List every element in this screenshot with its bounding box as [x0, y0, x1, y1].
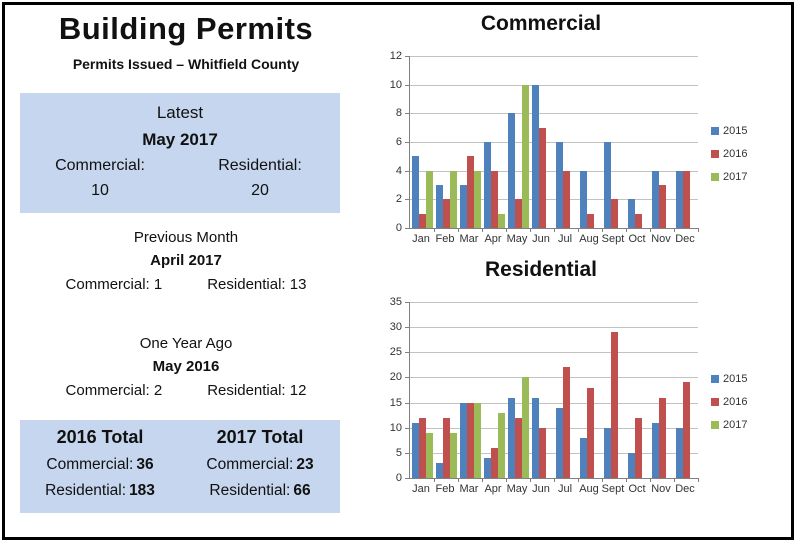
bar-group — [530, 56, 554, 228]
bar-2016-Mar — [467, 403, 474, 478]
bar-2016-Apr — [491, 448, 498, 478]
totals-2017-heading: 2017 Total — [180, 427, 340, 448]
bar-2016-Jun — [539, 428, 546, 478]
x-tick-mark — [554, 478, 555, 482]
residential-chart-body: 05101520253035 201520162017 — [385, 302, 791, 479]
bar-group — [554, 302, 578, 478]
bar-group — [410, 302, 434, 478]
totals-2017-commercial: Commercial:23 — [180, 456, 340, 474]
bar-group — [458, 302, 482, 478]
x-tick-mark — [602, 478, 603, 482]
totals-2016-commercial-label: Commercial: — [46, 456, 133, 473]
previous-month-block: Previous Month April 2017 Commercial: 1 … — [5, 229, 367, 293]
bar-group — [482, 302, 506, 478]
page-subtitle: Permits Issued – Whitfield County — [5, 56, 367, 72]
y-tick-label: 25 — [390, 346, 402, 359]
bar-2015-Sept — [604, 428, 611, 478]
totals-2017-residential-label: Residential: — [209, 482, 290, 499]
bar-2015-Aug — [580, 438, 587, 478]
x-tick-label: Sept — [601, 229, 625, 245]
totals-2017-commercial-label: Commercial: — [206, 456, 293, 473]
x-tick-label: Feb — [433, 229, 457, 245]
latest-labels-row: Commercial: Residential: — [20, 157, 340, 175]
x-tick-mark — [578, 228, 579, 232]
x-axis: JanFebMarAprMayJunJulAugSeptOctNovDec — [409, 229, 697, 245]
y-axis: 024681012 — [385, 56, 409, 228]
x-tick-label: Aug — [577, 479, 601, 495]
bar-2015-Apr — [484, 142, 491, 228]
bar-2016-Mar — [467, 156, 474, 228]
x-tick-mark — [482, 228, 483, 232]
bar-2015-Mar — [460, 403, 467, 478]
bar-2016-Oct — [635, 418, 642, 478]
x-tick-label: Feb — [433, 479, 457, 495]
x-tick-label: Dec — [673, 479, 697, 495]
x-tick-label: May — [505, 479, 529, 495]
legend-label-2016: 2016 — [723, 148, 747, 160]
legend-swatch-2017 — [711, 173, 719, 181]
y-tick-label: 20 — [390, 371, 402, 384]
bar-2016-Oct — [635, 214, 642, 228]
x-tick-label: Jan — [409, 229, 433, 245]
totals-2017-column: 2017 Total Commercial:23 Residential:66 — [180, 427, 340, 513]
bar-2015-May — [508, 398, 515, 478]
plot-area — [409, 302, 698, 479]
bar-2016-Aug — [587, 214, 594, 228]
residential-chart: Residential 05101520253035 201520162017 … — [385, 256, 791, 495]
latest-month: May 2017 — [20, 130, 340, 150]
totals-2016-heading: 2016 Total — [20, 427, 180, 448]
y-tick-label: 2 — [396, 193, 402, 206]
y-tick-label: 12 — [390, 50, 402, 63]
bar-2017-Mar — [474, 403, 481, 478]
legend-label-2017: 2017 — [723, 419, 747, 431]
x-tick-mark — [458, 228, 459, 232]
bar-2015-Jun — [532, 398, 539, 478]
y-tick-label: 0 — [396, 222, 402, 235]
bar-2017-Mar — [474, 171, 481, 228]
totals-2016-residential: Residential:183 — [20, 482, 180, 500]
x-tick-label: Sept — [601, 479, 625, 495]
legend-label-2016: 2016 — [723, 396, 747, 408]
bar-2015-Nov — [652, 423, 659, 478]
x-tick-mark — [650, 478, 651, 482]
commercial-chart-body: 024681012 201520162017 — [385, 56, 791, 229]
x-tick-label: Mar — [457, 479, 481, 495]
legend-swatch-2015 — [711, 375, 719, 383]
x-tick-label: Jul — [553, 229, 577, 245]
x-tick-label: Apr — [481, 229, 505, 245]
commercial-chart: Commercial 024681012 201520162017 JanFeb… — [385, 10, 791, 245]
x-tick-label: May — [505, 229, 529, 245]
bar-group — [674, 56, 698, 228]
y-tick-label: 30 — [390, 321, 402, 334]
x-tick-mark — [506, 478, 507, 482]
one-year-ago-name: May 2016 — [5, 358, 367, 375]
x-tick-mark — [530, 478, 531, 482]
y-tick-label: 15 — [390, 397, 402, 410]
previous-residential: Residential: 13 — [207, 276, 306, 293]
oneyear-commercial: Commercial: 2 — [66, 382, 163, 399]
bar-2017-Jan — [426, 433, 433, 478]
bar-group — [434, 56, 458, 228]
x-tick-label: Jun — [529, 229, 553, 245]
bar-2017-Feb — [450, 171, 457, 228]
bar-group — [458, 56, 482, 228]
x-tick-mark — [554, 228, 555, 232]
residential-chart-title: Residential — [385, 256, 697, 284]
y-tick-label: 5 — [396, 447, 402, 460]
one-year-ago-block: One Year Ago May 2016 Commercial: 2 Resi… — [5, 335, 367, 399]
bar-2016-Nov — [659, 185, 666, 228]
x-tick-mark — [506, 228, 507, 232]
x-tick-mark — [602, 228, 603, 232]
bar-2016-May — [515, 418, 522, 478]
bar-2016-Apr — [491, 171, 498, 228]
bar-2016-Jul — [563, 367, 570, 478]
latest-summary-box: Latest May 2017 Commercial: Residential:… — [20, 93, 340, 213]
summary-panel: Building Permits Permits Issued – Whitfi… — [5, 5, 367, 72]
legend-label-2017: 2017 — [723, 171, 747, 183]
legend-label-2015: 2015 — [723, 373, 747, 385]
x-tick-label: Apr — [481, 479, 505, 495]
bar-2015-Oct — [628, 453, 635, 478]
bar-2016-Jun — [539, 128, 546, 228]
previous-commercial: Commercial: 1 — [66, 276, 163, 293]
legend-swatch-2016 — [711, 398, 719, 406]
bar-group — [674, 302, 698, 478]
y-tick-label: 35 — [390, 296, 402, 309]
legend-item-2015: 2015 — [711, 373, 747, 385]
latest-commercial-label: Commercial: — [20, 157, 180, 175]
bar-2015-Feb — [436, 185, 443, 228]
totals-2016-column: 2016 Total Commercial:36 Residential:183 — [20, 427, 180, 513]
bar-2015-Jun — [532, 85, 539, 228]
x-tick-mark — [482, 478, 483, 482]
x-tick-label: Oct — [625, 229, 649, 245]
bar-2016-Jul — [563, 171, 570, 228]
x-tick-label: Jul — [553, 479, 577, 495]
legend: 201520162017 — [711, 78, 747, 229]
x-tick-label: Oct — [625, 479, 649, 495]
legend-item-2015: 2015 — [711, 125, 747, 137]
bar-2016-May — [515, 199, 522, 228]
bar-2015-Dec — [676, 428, 683, 478]
bar-2015-Sept — [604, 142, 611, 228]
bar-2015-Jul — [556, 142, 563, 228]
x-axis: JanFebMarAprMayJunJulAugSeptOctNovDec — [409, 479, 697, 495]
x-tick-mark — [530, 228, 531, 232]
bar-2015-Feb — [436, 463, 443, 478]
x-tick-mark — [434, 478, 435, 482]
totals-2017-residential-value: 66 — [293, 482, 310, 499]
x-tick-mark — [698, 478, 699, 482]
y-tick-label: 10 — [390, 79, 402, 92]
latest-residential-label: Residential: — [180, 157, 340, 175]
latest-values-row: 10 20 — [20, 182, 340, 200]
y-axis: 05101520253035 — [385, 302, 409, 478]
y-tick-label: 6 — [396, 136, 402, 149]
bar-2016-Dec — [683, 382, 690, 478]
totals-2016-commercial: Commercial:36 — [20, 456, 180, 474]
bar-2015-Jul — [556, 408, 563, 478]
totals-2016-commercial-value: 36 — [136, 456, 153, 473]
bar-2016-Feb — [443, 418, 450, 478]
x-tick-mark — [458, 478, 459, 482]
y-tick-label: 10 — [390, 422, 402, 435]
bar-group — [650, 302, 674, 478]
bar-2015-Apr — [484, 458, 491, 478]
bars-layer — [410, 56, 698, 228]
previous-month-values: Commercial: 1 Residential: 13 — [5, 276, 367, 293]
bar-group — [626, 56, 650, 228]
bar-group — [578, 302, 602, 478]
x-tick-mark — [578, 478, 579, 482]
latest-residential-value: 20 — [180, 182, 340, 200]
x-tick-label: Nov — [649, 479, 673, 495]
legend-item-2017: 2017 — [711, 171, 747, 183]
x-tick-mark — [674, 478, 675, 482]
bar-2015-Jan — [412, 156, 419, 228]
bar-2015-Dec — [676, 171, 683, 228]
x-tick-label: Dec — [673, 229, 697, 245]
oneyear-residential: Residential: 12 — [207, 382, 306, 399]
x-tick-mark — [650, 228, 651, 232]
bar-group — [554, 56, 578, 228]
one-year-ago-heading: One Year Ago — [5, 335, 367, 352]
legend-swatch-2016 — [711, 150, 719, 158]
x-tick-mark — [698, 228, 699, 232]
bar-2017-Apr — [498, 214, 505, 228]
bar-2017-May — [522, 85, 529, 228]
bar-2017-Jan — [426, 171, 433, 228]
legend-swatch-2017 — [711, 421, 719, 429]
bar-2015-Aug — [580, 171, 587, 228]
previous-month-heading: Previous Month — [5, 229, 367, 246]
bar-group — [650, 56, 674, 228]
totals-box: 2016 Total Commercial:36 Residential:183… — [20, 420, 340, 513]
x-tick-mark — [674, 228, 675, 232]
y-tick-label: 4 — [396, 165, 402, 178]
bar-group — [434, 302, 458, 478]
bar-group — [482, 56, 506, 228]
bar-2016-Jan — [419, 418, 426, 478]
x-tick-label: Jan — [409, 479, 433, 495]
bar-2016-Sept — [611, 332, 618, 478]
bar-2017-Feb — [450, 433, 457, 478]
previous-month-name: April 2017 — [5, 252, 367, 269]
report-frame: Building Permits Permits Issued – Whitfi… — [2, 2, 794, 540]
bars-layer — [410, 302, 698, 478]
bar-group — [506, 302, 530, 478]
totals-2016-residential-value: 183 — [129, 482, 155, 499]
bar-2016-Sept — [611, 199, 618, 228]
x-tick-mark — [626, 478, 627, 482]
bar-2015-Mar — [460, 185, 467, 228]
legend-item-2016: 2016 — [711, 148, 747, 160]
latest-heading: Latest — [20, 103, 340, 123]
x-tick-label: Mar — [457, 229, 481, 245]
bar-2015-Nov — [652, 171, 659, 228]
bar-2016-Aug — [587, 388, 594, 479]
bar-group — [530, 302, 554, 478]
commercial-chart-title: Commercial — [385, 10, 697, 38]
bar-group — [410, 56, 434, 228]
x-tick-label: Nov — [649, 229, 673, 245]
y-tick-label: 0 — [396, 472, 402, 485]
totals-2017-commercial-value: 23 — [296, 456, 313, 473]
page-title: Building Permits — [5, 11, 367, 47]
bar-group — [626, 302, 650, 478]
plot-area — [409, 56, 698, 229]
x-tick-mark — [434, 228, 435, 232]
totals-2017-residential: Residential:66 — [180, 482, 340, 500]
x-tick-mark — [626, 228, 627, 232]
y-tick-label: 8 — [396, 107, 402, 120]
bar-2015-May — [508, 113, 515, 228]
bar-group — [578, 56, 602, 228]
legend: 201520162017 — [711, 324, 747, 479]
x-tick-label: Jun — [529, 479, 553, 495]
bar-2017-Apr — [498, 413, 505, 478]
bar-group — [602, 302, 626, 478]
bar-2016-Feb — [443, 199, 450, 228]
latest-commercial-value: 10 — [20, 182, 180, 200]
bar-2015-Jan — [412, 423, 419, 478]
bar-group — [602, 56, 626, 228]
legend-label-2015: 2015 — [723, 125, 747, 137]
totals-2016-residential-label: Residential: — [45, 482, 126, 499]
bar-2015-Oct — [628, 199, 635, 228]
bar-group — [506, 56, 530, 228]
bar-2016-Dec — [683, 171, 690, 228]
legend-item-2016: 2016 — [711, 396, 747, 408]
legend-swatch-2015 — [711, 127, 719, 135]
one-year-ago-values: Commercial: 2 Residential: 12 — [5, 382, 367, 399]
legend-item-2017: 2017 — [711, 419, 747, 431]
x-tick-label: Aug — [577, 229, 601, 245]
bar-2016-Nov — [659, 398, 666, 478]
bar-2016-Jan — [419, 214, 426, 228]
bar-2017-May — [522, 377, 529, 478]
